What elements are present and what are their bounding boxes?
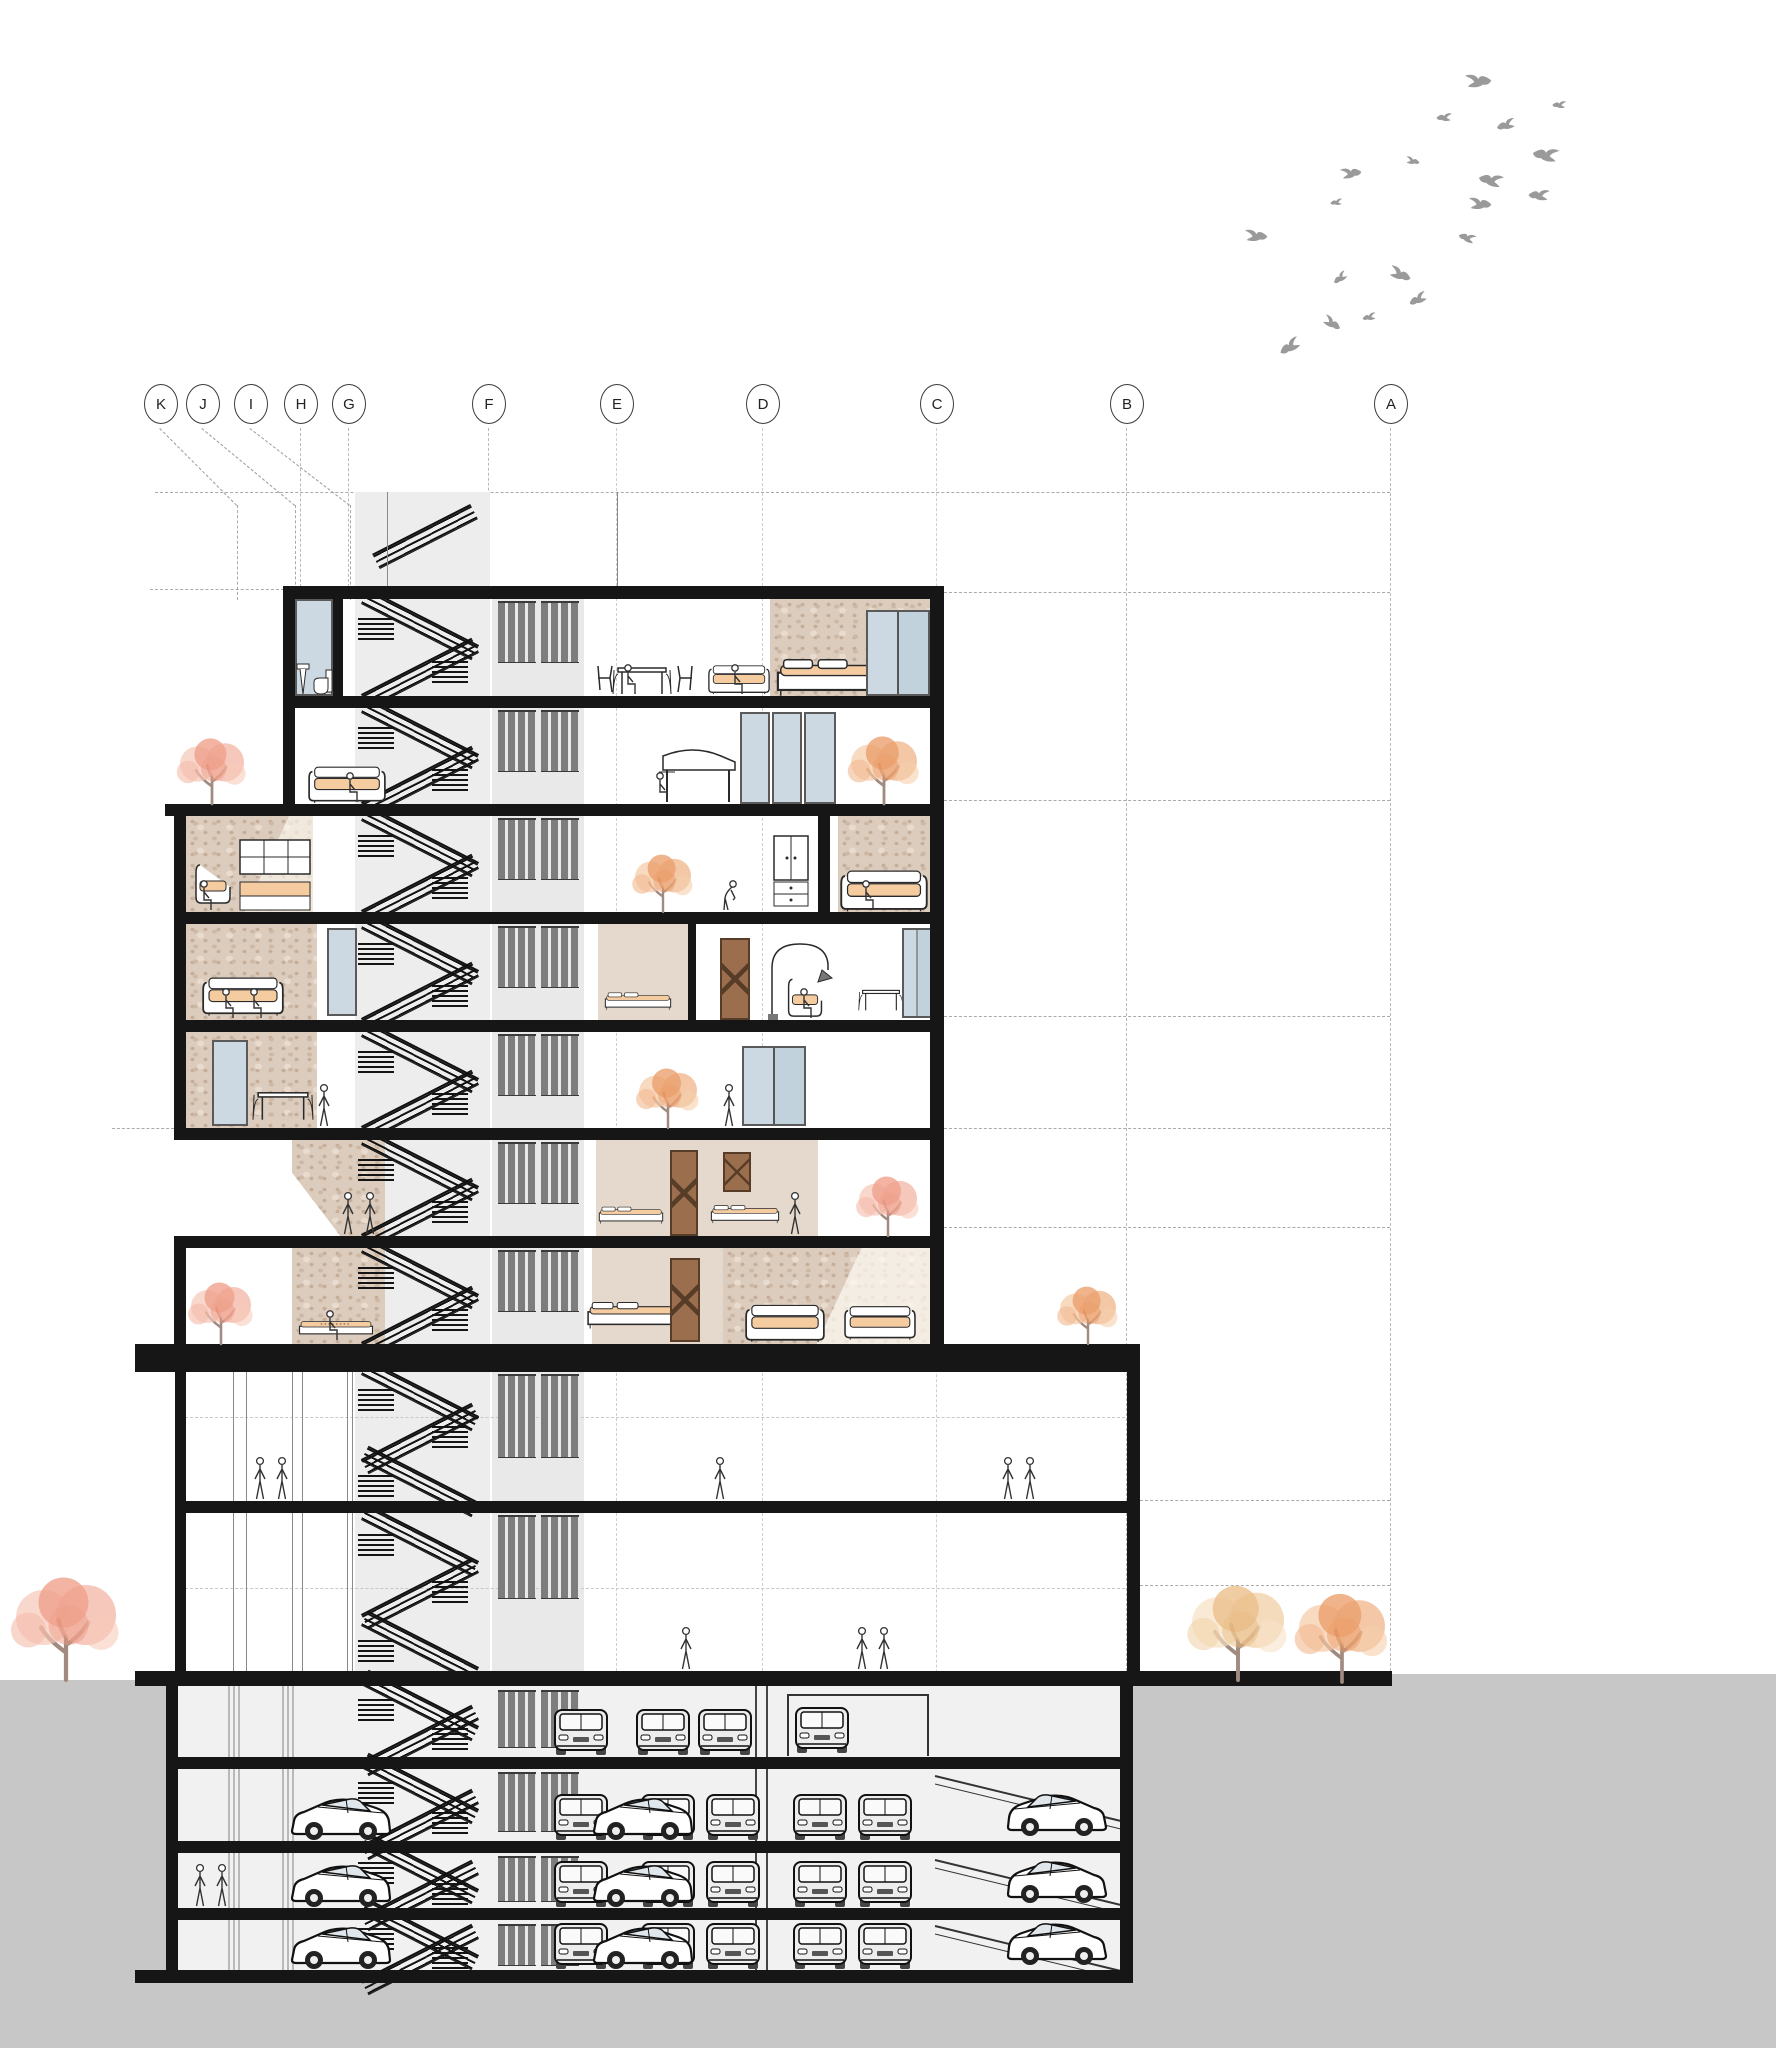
car-front <box>792 1789 848 1841</box>
stair-landing-rail <box>358 727 394 749</box>
floor-slab-6 <box>174 1236 944 1248</box>
floor-slab-11 <box>166 1841 1133 1853</box>
floor-slab-5 <box>174 1128 944 1140</box>
car-front <box>705 1918 761 1970</box>
toilet <box>312 668 334 696</box>
floor-slab-0 <box>283 586 944 599</box>
person-stand <box>679 1627 693 1671</box>
person-stand <box>193 1864 207 1908</box>
person-sit <box>799 988 813 1020</box>
bird <box>1466 196 1492 212</box>
floor-slab-13 <box>135 1970 1133 1983</box>
stair-landing-rail <box>358 943 394 965</box>
wall-unit-bed <box>238 838 312 912</box>
car-side <box>1006 1916 1110 1966</box>
louver-slats <box>541 601 579 663</box>
grid-label: E <box>612 396 622 413</box>
grid-label: K <box>156 396 166 413</box>
grid-label: C <box>932 396 943 413</box>
louver-slats <box>498 1690 536 1748</box>
bird <box>1552 100 1568 110</box>
tree <box>830 738 938 804</box>
dining-table <box>858 972 904 1018</box>
door-wood <box>670 1150 698 1236</box>
person-stand <box>275 1457 289 1501</box>
bird <box>1458 232 1478 244</box>
grid-bubble-I: I <box>234 384 268 424</box>
louver-slats <box>541 1250 579 1312</box>
car-side <box>590 1920 694 1970</box>
glass-wall <box>212 1040 248 1126</box>
person-sit <box>730 664 744 696</box>
bird <box>1330 198 1344 207</box>
louver-slats <box>541 1034 579 1096</box>
door-wood <box>720 938 750 1020</box>
window <box>742 1046 806 1126</box>
sofa <box>202 962 284 1020</box>
stair-landing-rail <box>358 1640 394 1662</box>
person-sit <box>623 664 637 696</box>
dining-table <box>252 1072 314 1126</box>
car-side <box>590 1858 694 1908</box>
chair <box>676 664 694 696</box>
person-bend <box>721 876 735 912</box>
car-side <box>288 1791 392 1841</box>
bird <box>1478 172 1506 189</box>
ref-line-podium-2 <box>185 1588 1125 1590</box>
louver-slats <box>498 1924 536 1966</box>
louver-slats <box>498 601 536 663</box>
tree <box>170 740 254 804</box>
grid-label: H <box>296 396 307 413</box>
sofa <box>736 1294 834 1342</box>
louver-slats <box>498 1374 536 1458</box>
louver-slats <box>498 1856 536 1902</box>
door-wood <box>723 1152 751 1192</box>
ref-line-left <box>112 1128 174 1130</box>
section-drawing: KJIHGFEDCBA <box>0 0 1776 2048</box>
louver-slats <box>498 1034 536 1096</box>
person-sit <box>861 880 875 912</box>
grid-label: A <box>1386 396 1396 413</box>
stair-landing-rail <box>432 661 468 683</box>
tree <box>178 1284 264 1344</box>
grid-line-H <box>300 428 302 592</box>
car-front <box>857 1856 913 1908</box>
folding-glass-door <box>772 712 802 804</box>
bulkhead-wall-left <box>387 492 388 588</box>
louver-slats <box>541 1374 579 1458</box>
floor-slab-10 <box>166 1757 1133 1769</box>
person-stand <box>215 1864 229 1908</box>
stair-landing-rail <box>432 985 468 1007</box>
grid-label: G <box>343 396 355 413</box>
stair-landing-rail <box>358 1267 394 1289</box>
grid-bubble-C: C <box>920 384 954 424</box>
car-side <box>1006 1787 1110 1837</box>
grid-leader-diag-K <box>159 428 237 506</box>
floor-slab-3 <box>174 912 944 924</box>
bird <box>1242 228 1268 244</box>
grid-label: D <box>758 396 769 413</box>
podium-partition-0 <box>233 1372 247 1671</box>
grid-bubble-G: G <box>332 384 366 424</box>
floor-slab-8 <box>175 1501 1140 1513</box>
louver-slats <box>541 1515 579 1599</box>
bird <box>1528 188 1552 203</box>
grid-bubble-J: J <box>186 384 220 424</box>
floor-slab-1 <box>283 696 944 708</box>
tree <box>625 856 701 912</box>
louver-slats <box>498 1142 536 1204</box>
wall-6 <box>930 592 944 1344</box>
grid-leader-diag-J <box>201 428 295 507</box>
tree <box>0 1580 136 1680</box>
person-stand <box>713 1457 727 1501</box>
person-sit <box>199 880 213 912</box>
stair-landing-rail <box>432 1426 468 1448</box>
wall-11 <box>1120 1686 1133 1983</box>
dining-table <box>606 652 678 696</box>
car-front <box>857 1789 913 1841</box>
tree <box>1281 1596 1403 1682</box>
person-stand <box>341 1192 355 1236</box>
car-front <box>705 1789 761 1841</box>
car-side <box>590 1791 694 1841</box>
ref-line-right-5 <box>1140 1500 1390 1502</box>
grid-line-E <box>616 428 618 1671</box>
parking-column-0 <box>228 1686 242 1970</box>
wall-10 <box>166 1686 178 1983</box>
person-sit <box>655 772 669 804</box>
cabinet <box>772 834 810 912</box>
ref-line-top <box>155 492 1390 494</box>
bird <box>1278 338 1304 354</box>
chair <box>596 664 614 696</box>
ref-line-right-0 <box>944 592 1390 594</box>
grid-label: J <box>199 396 207 413</box>
wall-3 <box>174 816 186 1128</box>
terrain-below <box>166 1983 1133 2048</box>
bird <box>1362 312 1378 322</box>
stair-landing-rail <box>432 877 468 899</box>
person-sit <box>221 988 235 1020</box>
sofa <box>840 858 928 912</box>
car-front <box>792 1918 848 1970</box>
bird <box>1436 112 1454 123</box>
podium-partition-2 <box>347 1372 353 1671</box>
sofa <box>844 1294 916 1342</box>
louver-slats <box>541 1142 579 1204</box>
person-stand <box>788 1192 802 1236</box>
ref-line-roof-left <box>150 589 284 591</box>
glass-wall <box>327 928 357 1016</box>
stair-landing-rail <box>358 1159 394 1181</box>
grid-bubble-B: B <box>1110 384 1144 424</box>
floor-slab-12 <box>166 1908 1133 1920</box>
ref-line-podium-1 <box>185 1417 1125 1419</box>
stair-landing-rail <box>432 1883 468 1905</box>
car-side <box>1006 1854 1110 1904</box>
louver-slats <box>498 1250 536 1312</box>
bird <box>1462 72 1492 91</box>
stair-landing-rail <box>358 618 394 640</box>
wall-7 <box>1127 1372 1140 1671</box>
tree <box>849 1178 927 1236</box>
grid-bubble-K: K <box>144 384 178 424</box>
tree <box>623 1070 713 1128</box>
ref-line-right-2 <box>944 1016 1390 1018</box>
grid-label: I <box>249 396 253 413</box>
ref-line-right-4 <box>944 1227 1390 1229</box>
car-front <box>792 1856 848 1908</box>
bird <box>1332 272 1350 283</box>
stair-landing-rail <box>358 1699 394 1721</box>
floor-slab-7 <box>135 1344 1140 1372</box>
stair-landing-rail <box>432 1093 468 1115</box>
stair-landing-rail <box>358 1534 394 1556</box>
ref-line-right-1 <box>944 800 1390 802</box>
tree <box>1049 1288 1127 1344</box>
louver-slats <box>498 1515 536 1599</box>
person-stand <box>877 1627 891 1671</box>
ref-line-right-3 <box>944 1128 1390 1130</box>
wall-8 <box>818 816 830 912</box>
louver-slats <box>498 926 536 988</box>
grid-label: F <box>484 396 493 413</box>
stair-landing-rail <box>358 1389 394 1411</box>
stair-landing-rail <box>432 1309 468 1331</box>
podium-partition-1 <box>292 1372 303 1671</box>
terrain-right <box>1133 1686 1776 2048</box>
bed <box>604 982 672 1020</box>
stair-landing-rail <box>432 1812 468 1834</box>
car-front <box>794 1702 850 1754</box>
louver-slats <box>498 1772 536 1832</box>
grid-line-A <box>1390 428 1392 1676</box>
wall-5 <box>175 1372 186 1671</box>
car-front <box>635 1704 691 1756</box>
person-stand <box>363 1192 377 1236</box>
stair-landing-rail <box>432 1581 468 1603</box>
bed <box>710 1194 780 1234</box>
door-wood <box>670 1258 700 1342</box>
person-sit <box>325 1310 339 1342</box>
window <box>866 610 930 696</box>
stair-landing-rail <box>358 1051 394 1073</box>
car-side <box>288 1858 392 1908</box>
stair-landing-rail <box>432 1728 468 1750</box>
wall-9 <box>688 924 696 1020</box>
grid-bubble-D: D <box>746 384 780 424</box>
bird <box>1532 146 1562 165</box>
stair-landing-rail <box>432 1201 468 1223</box>
bird <box>1386 266 1412 282</box>
louver-slats <box>498 710 536 772</box>
person-stand <box>1001 1457 1015 1501</box>
person-sit <box>345 772 359 804</box>
car-front <box>697 1704 753 1756</box>
bird <box>1338 166 1362 181</box>
floor-slab-4 <box>174 1020 944 1032</box>
louver-slats <box>541 926 579 988</box>
sink <box>296 662 310 696</box>
wall-1 <box>283 708 295 804</box>
person-stand <box>1023 1457 1037 1501</box>
person-sit <box>249 988 263 1020</box>
car-front <box>553 1704 609 1756</box>
grid-leader-vert-K <box>237 505 239 600</box>
louver-slats <box>541 710 579 772</box>
louver-slats <box>541 818 579 880</box>
person-stand <box>253 1457 267 1501</box>
wall-2 <box>333 599 343 696</box>
person-stand <box>317 1084 331 1128</box>
car-side <box>288 1920 392 1970</box>
ref-line-right-6 <box>1140 1585 1390 1587</box>
stair-landing-rail <box>358 835 394 857</box>
bird <box>1320 316 1342 330</box>
wall-0 <box>283 599 295 696</box>
bird <box>1404 156 1420 166</box>
louver-slats <box>498 818 536 880</box>
person-stand <box>855 1627 869 1671</box>
floor-slab-2 <box>165 804 944 816</box>
bulkhead-wall-right <box>617 492 618 588</box>
stair-landing-rail <box>358 1475 394 1497</box>
person-stand <box>722 1084 736 1128</box>
folding-glass-door <box>740 712 770 804</box>
bird <box>1496 118 1518 132</box>
window <box>902 928 932 1018</box>
grid-bubble-A: A <box>1374 384 1408 424</box>
grid-bubble-F: F <box>472 384 506 424</box>
bed <box>598 1196 664 1234</box>
grid-bubble-H: H <box>284 384 318 424</box>
car-front <box>705 1856 761 1908</box>
car-front <box>857 1918 913 1970</box>
terrain-left <box>0 1680 166 2048</box>
bird <box>1408 292 1430 306</box>
grid-label: B <box>1122 396 1132 413</box>
stair-landing-rail <box>432 769 468 791</box>
terrain-right-step <box>1392 1674 1776 1688</box>
grid-bubble-E: E <box>600 384 634 424</box>
stair-landing-rail <box>432 1947 468 1969</box>
